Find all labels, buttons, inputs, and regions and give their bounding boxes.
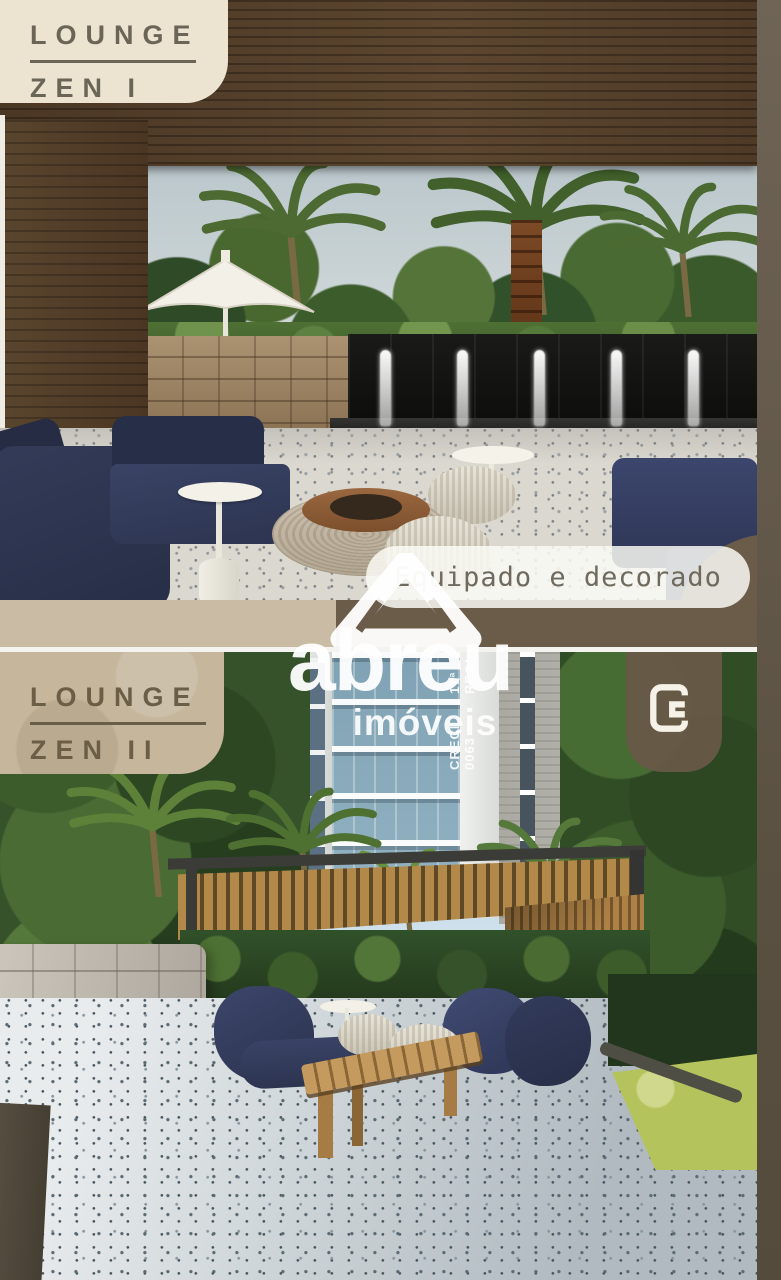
- label-subtitle: ZEN I: [30, 73, 228, 104]
- fountain-jet: [534, 350, 545, 426]
- label-divider: [30, 722, 206, 725]
- brown-edge-strip: [757, 0, 781, 1280]
- badge-text: Equipado e decorado: [394, 562, 722, 593]
- lounge-zen-1-label: LOUNGE ZEN I: [0, 0, 228, 103]
- side-table: [178, 482, 262, 502]
- navy-bean-bag: [505, 996, 591, 1086]
- beige-band: [0, 600, 336, 652]
- real-estate-flyer: Equipado e decorado LOUNGE ZEN I: [0, 0, 781, 1280]
- small-table: [452, 446, 534, 464]
- panel-divider-line: [0, 647, 781, 652]
- palm-tree: [590, 182, 775, 317]
- fountain-jet: [611, 350, 622, 426]
- wood-bench: [352, 1084, 363, 1146]
- fountain-jet: [380, 350, 391, 426]
- side-table: [199, 558, 239, 606]
- lounge-zen-1-panel: Equipado e decorado LOUNGE ZEN I: [0, 0, 781, 652]
- developer-logo-tab: [626, 652, 722, 772]
- navy-lounge-chair: [110, 464, 290, 544]
- fountain-jet: [457, 350, 468, 426]
- label-subtitle: ZEN II: [30, 735, 224, 766]
- lounge-zen-2-panel: Equipado e decorado LOUNGE ZEN II: [0, 652, 781, 1280]
- lounge-zen-2-label: LOUNGE ZEN II: [0, 652, 224, 774]
- side-table: [216, 498, 222, 564]
- fountain-jet: [688, 350, 699, 426]
- equipped-decorated-badge: Equipado e decorado: [366, 546, 750, 608]
- label-divider: [30, 60, 196, 63]
- label-title: LOUNGE: [30, 20, 228, 51]
- wicker-coffee-table: [330, 494, 402, 520]
- developer-monogram-icon: [647, 681, 701, 735]
- label-title: LOUNGE: [30, 682, 224, 713]
